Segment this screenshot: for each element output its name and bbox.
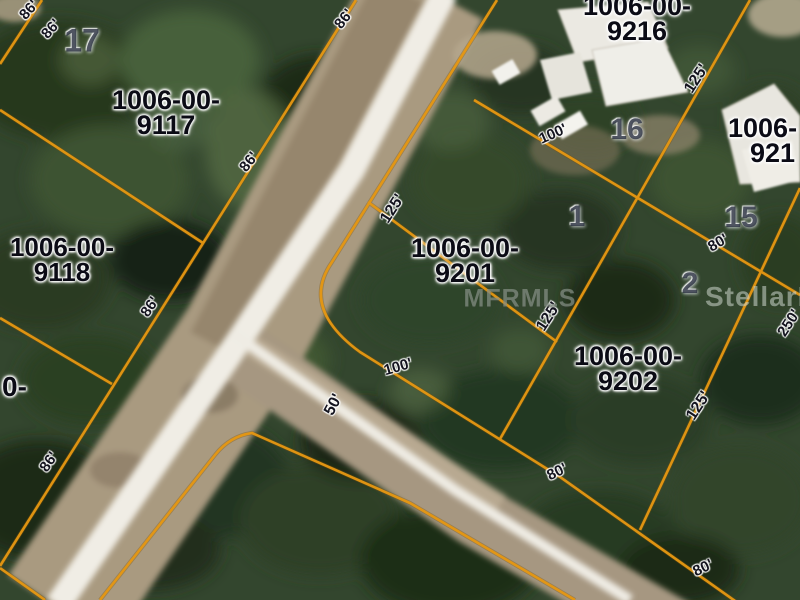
watermark-mfrmls: MFRMLS bbox=[464, 285, 577, 314]
lot-number: 2 bbox=[682, 267, 699, 301]
parcel-id-label: 1006-00-9216 bbox=[583, 0, 691, 44]
lot-number: 16 bbox=[610, 113, 643, 147]
lot-number: 17 bbox=[64, 23, 100, 60]
parcel-id-label: 1006-00-9117 bbox=[112, 88, 220, 138]
parcel-id-label: 1006-00-9202 bbox=[574, 344, 682, 394]
parcel-id-fragment: 0- bbox=[2, 374, 27, 399]
watermark-stellarmls: StellarMLS bbox=[705, 281, 800, 313]
lot-number: 15 bbox=[724, 201, 757, 235]
parcel-map[interactable]: 1006-00-9117 1006-00-9118 1006-00-9216 1… bbox=[0, 0, 800, 600]
parcel-id-label: 1006-00-9201 bbox=[411, 236, 519, 286]
parcel-id-label-clipped: 1006- 921 bbox=[728, 116, 797, 166]
lot-number: 1 bbox=[569, 200, 586, 234]
parcel-id-label: 1006-00-9118 bbox=[10, 235, 114, 285]
